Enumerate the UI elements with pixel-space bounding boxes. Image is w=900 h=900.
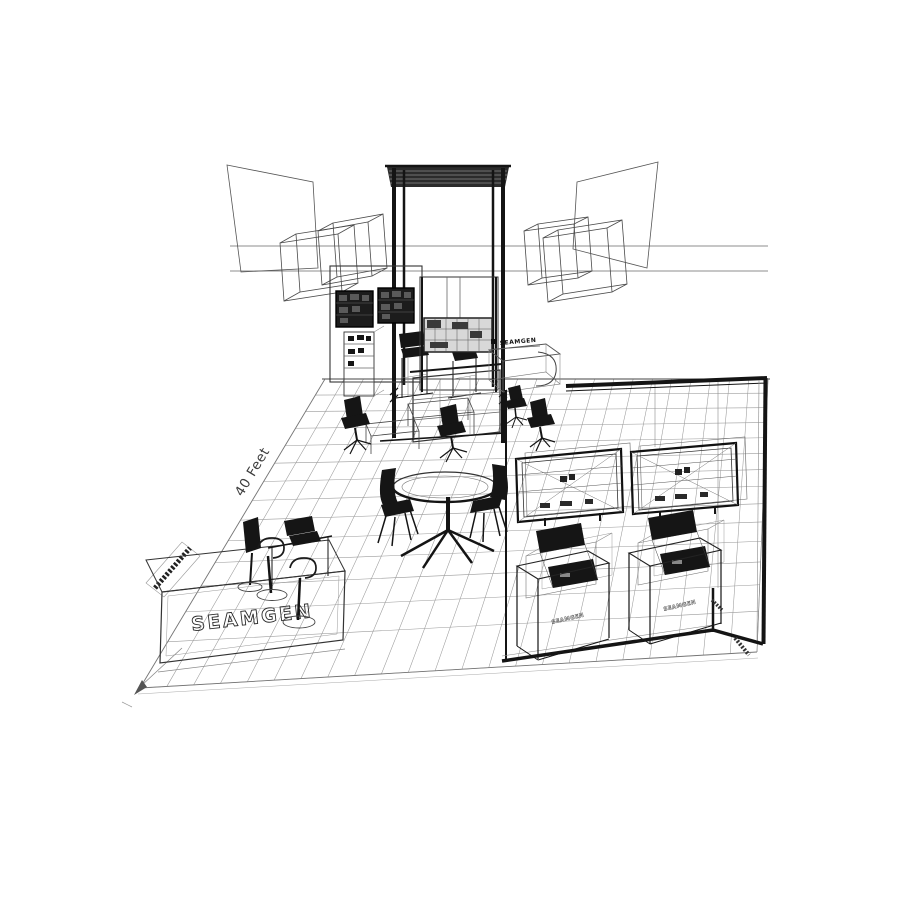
wall-monitor-1 (336, 291, 373, 327)
kiosk-screen (424, 318, 492, 352)
wall-monitor-2 (378, 288, 414, 323)
booth-wireframe-drawing: 40 Feet (0, 0, 900, 900)
wireframe-render-canvas: 40 Feet (0, 0, 900, 900)
